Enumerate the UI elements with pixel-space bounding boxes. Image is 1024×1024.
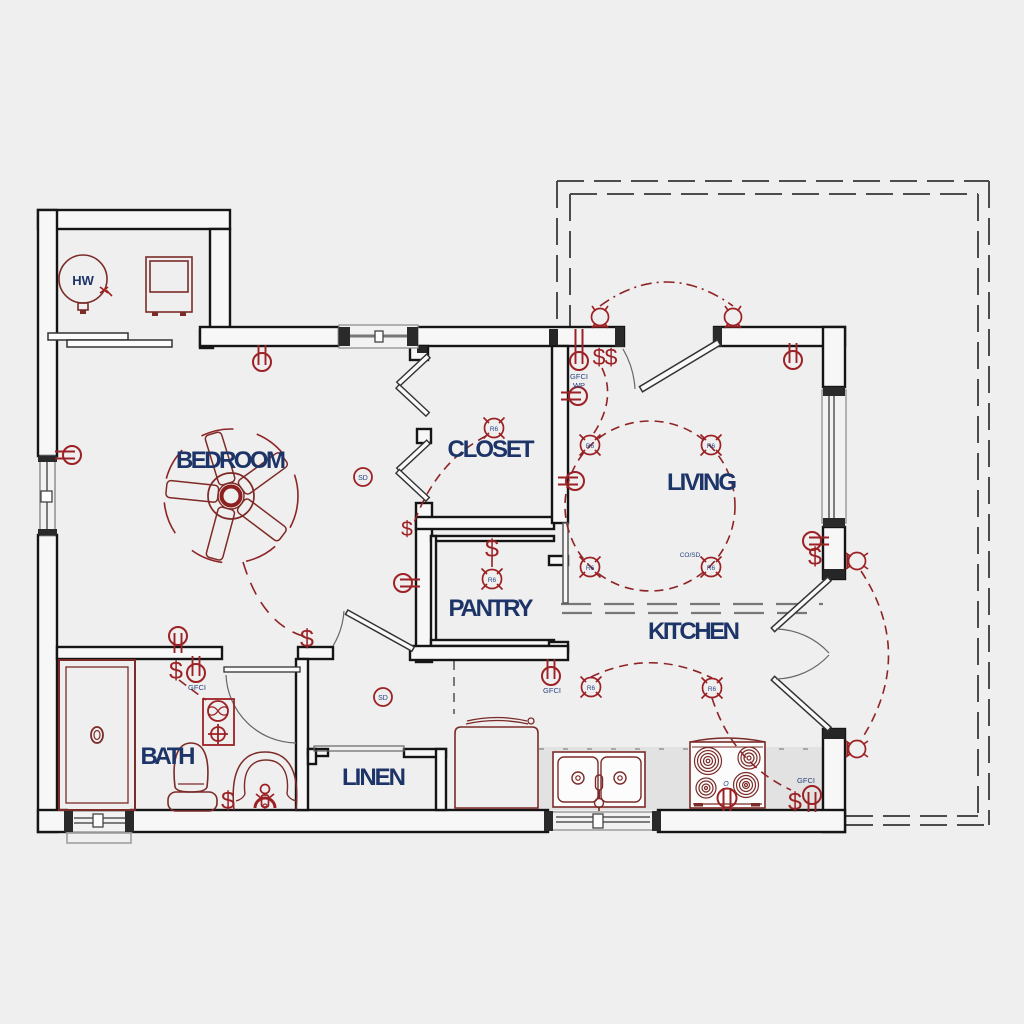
svg-text:GFCI: GFCI xyxy=(188,683,206,692)
svg-text:$: $ xyxy=(221,787,235,815)
svg-text:SD: SD xyxy=(378,695,388,702)
svg-text:$: $ xyxy=(808,543,822,571)
svg-text:CO/SD: CO/SD xyxy=(680,552,701,559)
svg-text:R6: R6 xyxy=(707,443,716,450)
svg-text:R6: R6 xyxy=(587,685,596,692)
svg-text:GFCI: GFCI xyxy=(543,686,561,695)
svg-text:BATH: BATH xyxy=(141,743,196,770)
svg-text:LINEN: LINEN xyxy=(342,764,406,791)
svg-text:GFCI: GFCI xyxy=(797,776,815,785)
svg-text:$: $ xyxy=(300,625,314,653)
svg-text:$: $ xyxy=(788,788,802,816)
svg-text:CLOSET: CLOSET xyxy=(448,436,535,463)
svg-text:WH: WH xyxy=(72,273,94,288)
svg-text:$: $ xyxy=(605,344,618,370)
svg-text:R6: R6 xyxy=(707,565,716,572)
svg-text:SD: SD xyxy=(358,475,368,482)
svg-text:KITCHEN: KITCHEN xyxy=(648,618,740,645)
svg-text:R6: R6 xyxy=(586,443,595,450)
svg-text:R6: R6 xyxy=(490,426,499,433)
svg-text:LIVING: LIVING xyxy=(667,469,737,496)
svg-text:R6: R6 xyxy=(708,686,717,693)
svg-text:R6: R6 xyxy=(488,577,497,584)
svg-text:$: $ xyxy=(401,518,413,541)
svg-text:WP: WP xyxy=(573,381,585,390)
svg-text:R6: R6 xyxy=(586,565,595,572)
svg-text:BEDROOM: BEDROOM xyxy=(176,447,286,474)
svg-text:GFCI: GFCI xyxy=(570,372,588,381)
svg-text:PANTRY: PANTRY xyxy=(449,595,534,622)
svg-text:O: O xyxy=(723,781,729,788)
